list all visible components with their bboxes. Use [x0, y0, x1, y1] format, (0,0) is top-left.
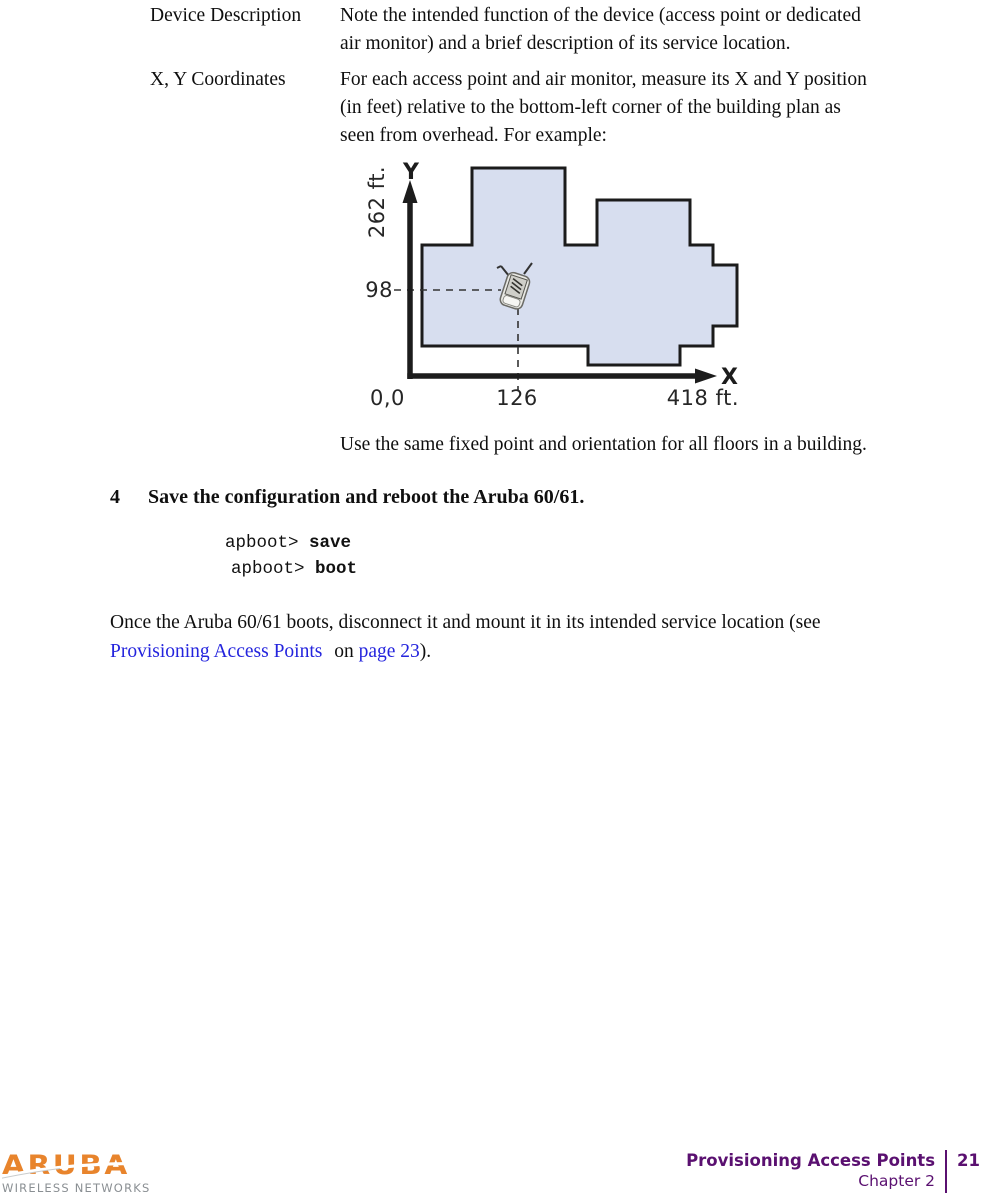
code-line-save: apboot> save — [225, 530, 357, 556]
aruba-tagline-text: WIRELESS NETWORKS — [2, 1181, 152, 1195]
x-axis-arrowhead — [695, 369, 717, 384]
code-command: save — [309, 533, 351, 553]
step-number: 4 — [110, 483, 120, 511]
description-line: (in feet) relative to the bottom-left co… — [340, 94, 948, 122]
paragraph-end-text: ). — [420, 641, 431, 662]
aruba-logo: ARUBA WIRELESS NETWORKS — [2, 1153, 152, 1195]
building-outline — [422, 168, 737, 365]
footer-titles: Provisioning Access Points Chapter 2 — [686, 1150, 935, 1192]
aruba-brand-text: ARUBA — [2, 1153, 155, 1177]
footer-doc-title: Provisioning Access Points — [686, 1150, 935, 1171]
footer-chapter: Chapter 2 — [686, 1171, 935, 1192]
paragraph-line: Once the Aruba 60/61 boots, disconnect i… — [110, 609, 970, 638]
code-line-boot: apboot> boot — [225, 556, 357, 582]
code-prompt: apboot> — [231, 559, 315, 579]
apboot-code-block: apboot> save apboot> boot — [225, 530, 357, 582]
code-prompt: apboot> — [225, 533, 309, 553]
x-point-label: 126 — [496, 386, 538, 410]
footer-divider — [945, 1150, 947, 1193]
definition-term: X, Y Coordinates — [150, 66, 335, 94]
link-connector-text: on — [329, 641, 358, 662]
y-point-label: 98 — [365, 278, 393, 302]
description-line: For each access point and air monitor, m… — [340, 66, 948, 94]
page-23-link[interactable]: page 23 — [359, 641, 420, 662]
footer-page-number: 21 — [957, 1150, 980, 1171]
definition-term: Device Description — [150, 2, 335, 30]
figure-note: Use the same fixed point and orientation… — [340, 431, 867, 459]
manual-page: Device Description Note the intended fun… — [0, 0, 987, 1197]
provisioning-access-points-link[interactable]: Provisioning Access Points — [110, 641, 322, 662]
step-text: Save the configuration and reboot the Ar… — [148, 483, 584, 511]
description-line: Note the intended function of the device… — [340, 2, 948, 30]
paragraph-line: Provisioning Access Points on page 23). — [110, 638, 970, 667]
building-plan-figure: Y 262 ft. 98 0,0 126 418 ft. X — [360, 153, 760, 415]
definition-description: Note the intended function of the device… — [340, 2, 948, 58]
x-axis-label: X — [721, 365, 738, 390]
closing-paragraph: Once the Aruba 60/61 boots, disconnect i… — [110, 609, 970, 666]
origin-label: 0,0 — [370, 386, 405, 410]
description-line: air monitor) and a brief description of … — [340, 30, 948, 58]
description-line: seen from overhead. For example: — [340, 122, 948, 150]
y-axis-label: Y — [402, 160, 420, 185]
footer-right: Provisioning Access Points Chapter 2 21 — [686, 1150, 980, 1193]
code-command: boot — [315, 559, 357, 579]
building-plan-svg: Y 262 ft. 98 0,0 126 418 ft. X — [360, 153, 760, 415]
definition-description: For each access point and air monitor, m… — [340, 66, 948, 150]
y-max-label: 262 ft. — [365, 166, 389, 238]
aruba-logo-wordmark: ARUBA — [2, 1153, 152, 1179]
